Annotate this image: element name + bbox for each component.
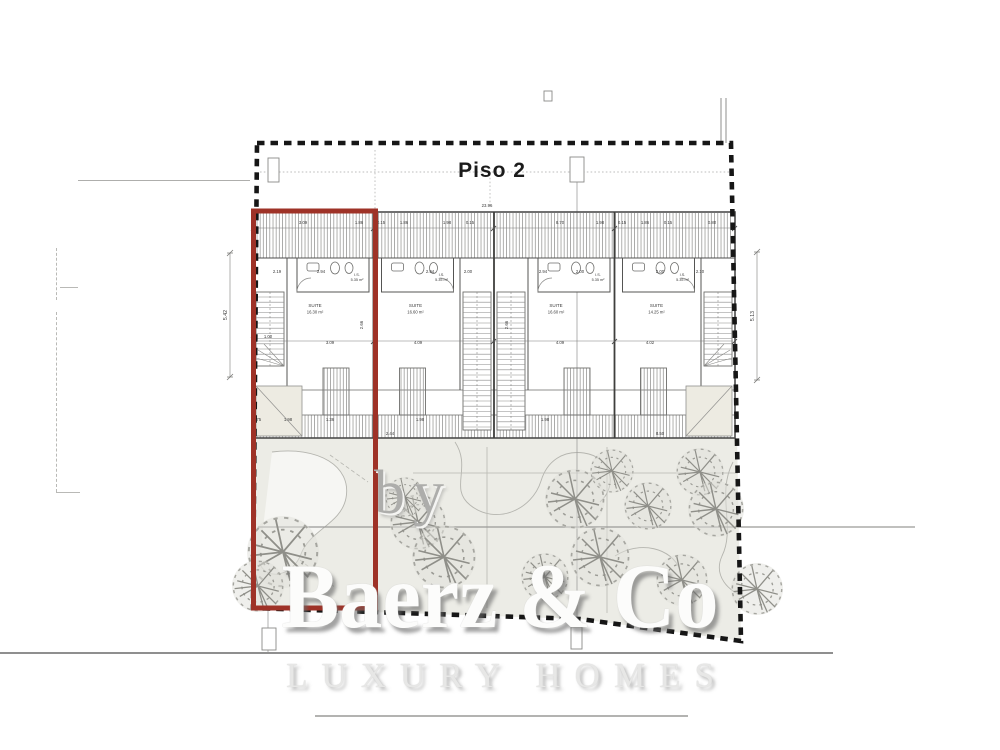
room-area-label: 16.60 m² (407, 310, 424, 315)
dim-label: 0.15 (377, 220, 386, 225)
watermark-tagline: LUXURY HOMES (0, 658, 1000, 693)
room-label: SUITE (650, 303, 663, 308)
dim-label: 5.13 (750, 311, 756, 321)
dim-label: 0.15 (664, 220, 673, 225)
dim-label: 3.09 (326, 340, 335, 345)
dim-label: 4.09 (556, 340, 565, 345)
watermark-rule-top (0, 652, 833, 654)
dim-label: 1.98 (541, 417, 550, 422)
dim-label: 1.98 (443, 220, 452, 225)
dim-label: 4.02 (646, 340, 655, 345)
tree-icon (590, 449, 634, 493)
dim-label: 1.98 (596, 220, 605, 225)
room-label: SUITE (549, 303, 562, 308)
dim-label: 2.66 (504, 320, 509, 329)
dim-label: 1.86 (641, 220, 650, 225)
bath-label: I.S. (680, 273, 686, 277)
tree-icon (624, 482, 672, 530)
bath-label: I.S. (595, 273, 601, 277)
room-label: SUITE (409, 303, 422, 308)
dim-label: 5.42 (223, 310, 229, 320)
dim-label: 8.50 (656, 431, 665, 436)
dim-label: 2.00 (576, 269, 585, 274)
dim-label: 1.86 (400, 220, 409, 225)
room-label: SUITE (308, 303, 321, 308)
dim-label: 2.00 (656, 269, 665, 274)
dim-label: 3.09 (299, 220, 308, 225)
dim-label: 2.00 (464, 269, 473, 274)
bath-label: I.S. (354, 273, 360, 277)
unit-1: SUITE16.30 m²I.S.5.35 m² (256, 258, 369, 436)
bath-area-label: 5.35 m² (435, 278, 449, 282)
dim-label: 1.00 (264, 334, 273, 339)
watermark-brand: Baerz & Co (30, 550, 970, 642)
dim-label: 2.66 (359, 320, 364, 329)
dim-label: 1.98 (416, 417, 425, 422)
room-area-label: 16.30 m² (307, 310, 324, 315)
watermark-rule-bottom (315, 715, 688, 717)
dim-label: 2.94 (539, 269, 548, 274)
margin-tick (60, 287, 78, 288)
dim-label: 2.94 (317, 269, 326, 274)
tree-icon (688, 481, 744, 537)
bath-area-label: 5.35 m² (351, 278, 365, 282)
watermark-by: by (374, 458, 452, 529)
dim-label: 1.86 (355, 220, 364, 225)
margin-tick (56, 492, 80, 493)
dim-label: 0.15 (466, 220, 475, 225)
dim-label: 23.96 (482, 203, 493, 208)
margin-fine-print (56, 248, 57, 300)
dim-label: 2.44 (386, 431, 395, 436)
dim-label: 2.10 (696, 269, 705, 274)
margin-rule (78, 180, 250, 181)
dim-label: 8.70 (556, 220, 565, 225)
margin-fine-print (56, 312, 57, 492)
dim-label: 1.98 (284, 417, 293, 422)
bath-area-label: 5.35 m² (676, 278, 690, 282)
dim-label: 1.36 (326, 417, 335, 422)
floorplan-canvas: SUITE16.30 m²I.S.5.35 m²SUITE16.60 m²I.S… (0, 0, 1000, 750)
room-area-label: 16.60 m² (548, 310, 565, 315)
dim-label: 2.19 (273, 269, 282, 274)
dim-label: 4.09 (414, 340, 423, 345)
dim-label: 2.94 (426, 269, 435, 274)
dim-label: 0.15 (618, 220, 627, 225)
bath-label: I.S. (439, 273, 445, 277)
dim-label: 0.80 (708, 220, 717, 225)
room-area-label: 14.25 m² (648, 310, 665, 315)
page-title: Piso 2 (458, 159, 526, 182)
bath-area-label: 5.35 m² (592, 278, 606, 282)
